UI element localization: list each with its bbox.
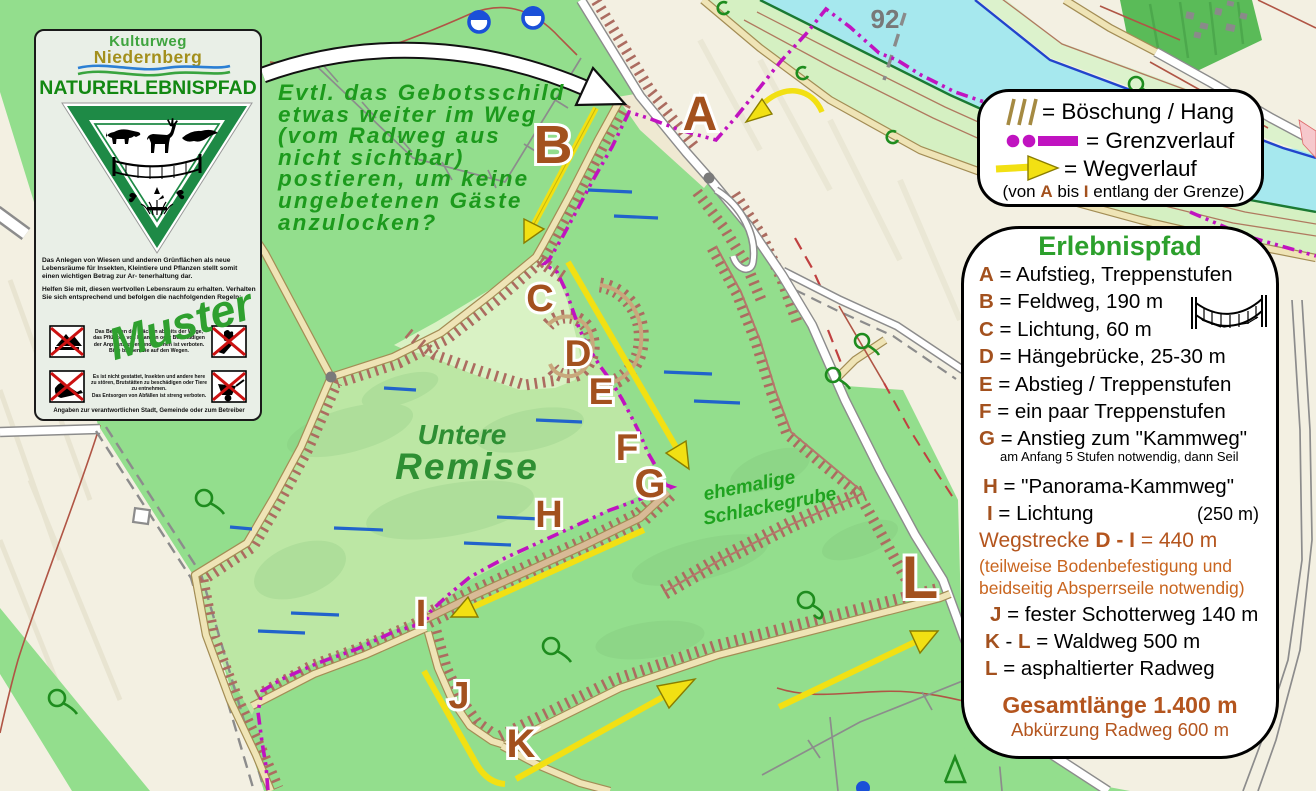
- svg-text:L: L: [902, 544, 939, 611]
- svg-text:E: E: [589, 371, 614, 412]
- svg-text:C: C: [526, 278, 553, 320]
- svg-text:A: A: [683, 88, 718, 141]
- svg-text:G: G: [634, 462, 665, 506]
- svg-text:J: J: [448, 675, 469, 717]
- svg-text:92: 92: [871, 4, 900, 34]
- svg-text:I: I: [416, 593, 427, 635]
- svg-text:H: H: [535, 494, 562, 536]
- svg-text:D: D: [565, 333, 592, 374]
- svg-text:K: K: [507, 722, 536, 766]
- svg-text:Remise: Remise: [395, 446, 539, 487]
